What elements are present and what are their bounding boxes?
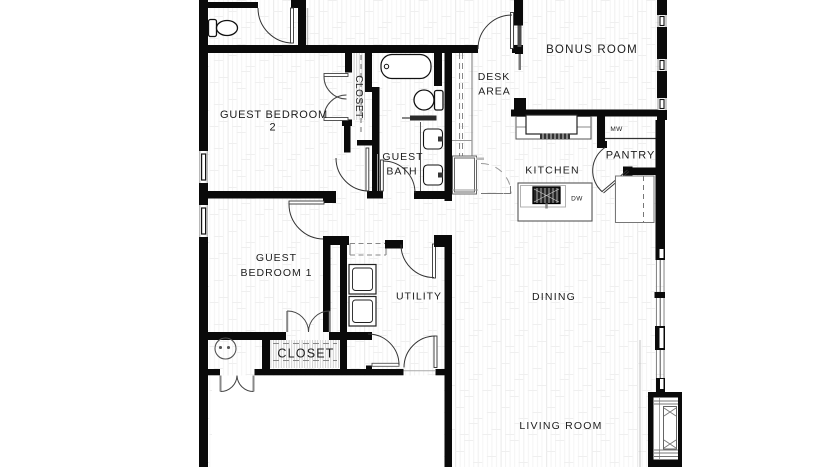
svg-text:MW: MW	[610, 126, 623, 133]
svg-text:GUEST: GUEST	[382, 151, 423, 163]
svg-text:CLOSET: CLOSET	[353, 75, 364, 119]
svg-text:DESK: DESK	[478, 71, 511, 83]
svg-text:DW: DW	[571, 196, 583, 203]
svg-text:KITCHEN: KITCHEN	[525, 165, 580, 177]
svg-text:BATH: BATH	[386, 166, 417, 178]
svg-text:UTILITY: UTILITY	[396, 291, 442, 303]
svg-text:CLOSET: CLOSET	[277, 347, 334, 361]
svg-text:LIVING ROOM: LIVING ROOM	[519, 420, 602, 432]
svg-text:2: 2	[270, 122, 277, 134]
svg-text:BONUS ROOM: BONUS ROOM	[546, 44, 638, 56]
svg-text:PANTRY: PANTRY	[606, 150, 656, 162]
svg-text:AREA: AREA	[478, 86, 511, 98]
svg-text:BEDROOM 1: BEDROOM 1	[240, 267, 312, 279]
svg-text:GUEST BEDROOM: GUEST BEDROOM	[220, 109, 328, 121]
svg-text:GUEST: GUEST	[256, 252, 297, 264]
svg-text:DINING: DINING	[532, 291, 576, 303]
